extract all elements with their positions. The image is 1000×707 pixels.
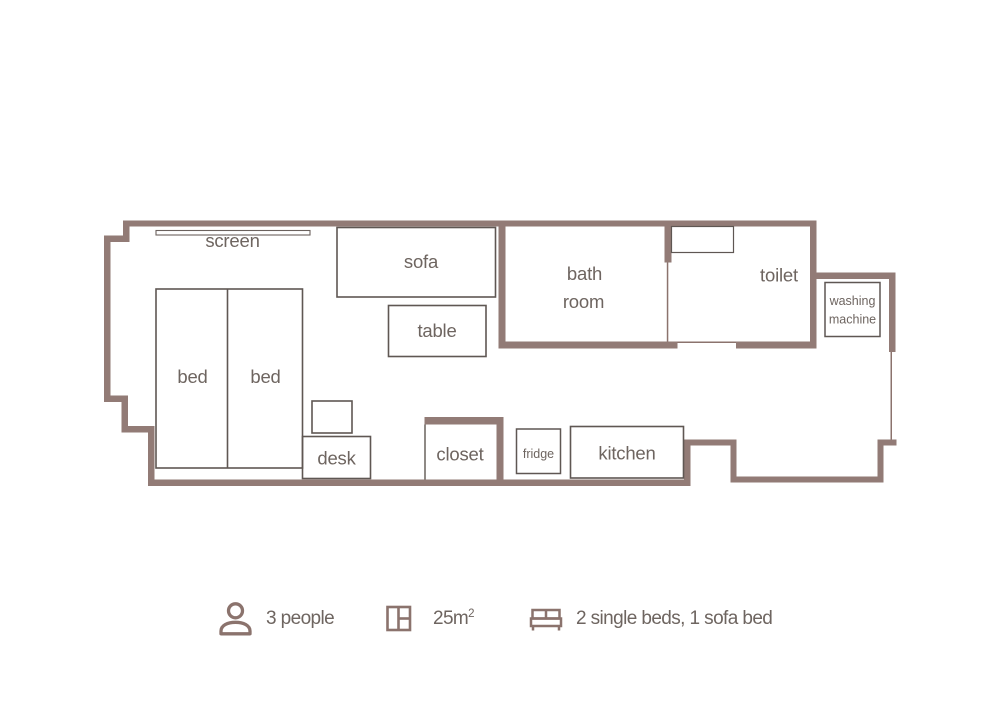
svg-text:machine: machine: [829, 313, 876, 327]
svg-text:washing: washing: [829, 294, 876, 308]
svg-text:closet: closet: [436, 444, 483, 465]
svg-text:toilet: toilet: [760, 265, 798, 286]
svg-text:25m2: 25m2: [433, 608, 474, 629]
svg-text:desk: desk: [317, 448, 356, 469]
svg-text:bed: bed: [177, 366, 207, 387]
svg-text:fridge: fridge: [523, 447, 554, 461]
svg-text:table: table: [417, 320, 456, 341]
svg-text:3 people: 3 people: [266, 608, 334, 629]
svg-text:screen: screen: [205, 230, 259, 251]
svg-text:2 single beds, 1 sofa bed: 2 single beds, 1 sofa bed: [576, 608, 772, 629]
svg-text:bath: bath: [567, 263, 602, 284]
svg-text:bed: bed: [250, 366, 280, 387]
svg-text:room: room: [563, 291, 604, 312]
svg-text:sofa: sofa: [404, 251, 439, 272]
svg-text:kitchen: kitchen: [598, 443, 655, 464]
